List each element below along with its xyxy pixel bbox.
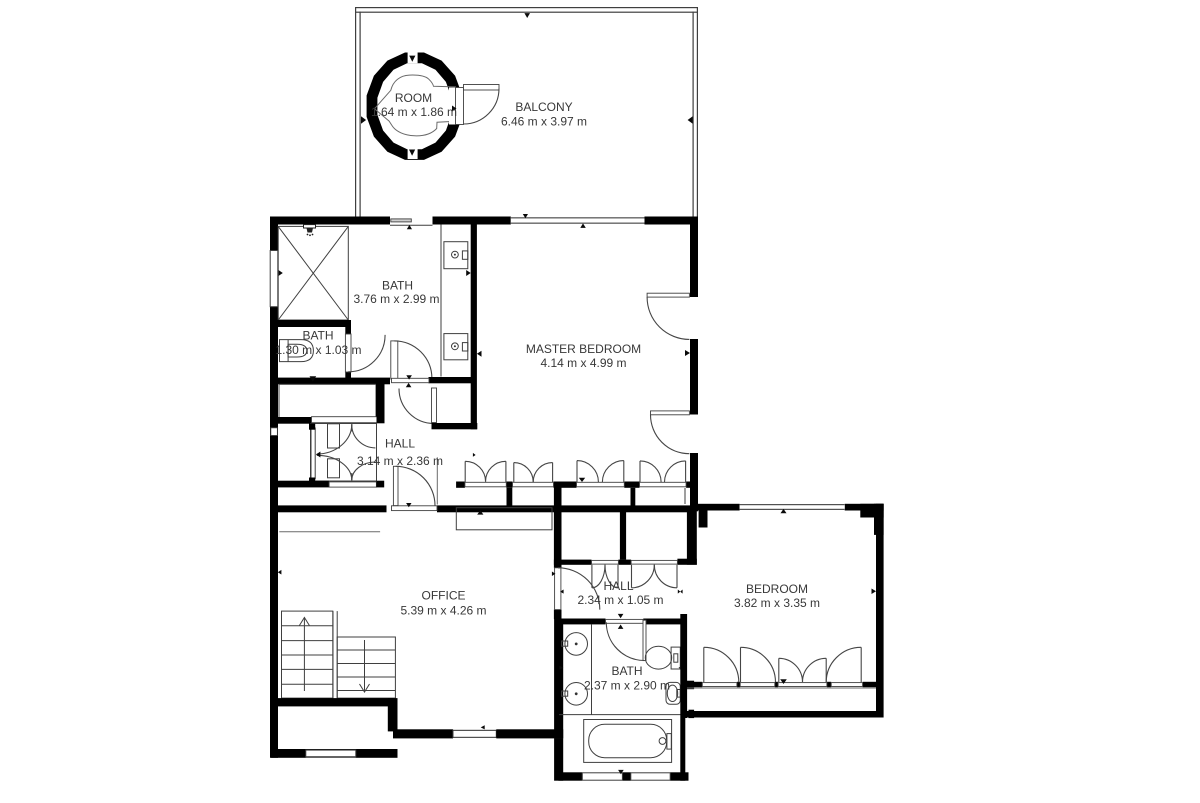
- svg-text:5.39 m x 4.26 m: 5.39 m x 4.26 m: [400, 604, 486, 618]
- svg-text:BATH: BATH: [382, 279, 413, 293]
- svg-text:2.34 m x 1.05 m: 2.34 m x 1.05 m: [577, 593, 663, 607]
- svg-text:2.37 m x 2.90 m: 2.37 m x 2.90 m: [584, 679, 670, 693]
- svg-text:3.76 m x 2.99 m: 3.76 m x 2.99 m: [353, 292, 439, 306]
- svg-text:HALL: HALL: [385, 437, 415, 451]
- svg-text:MASTER BEDROOM: MASTER BEDROOM: [526, 342, 641, 356]
- svg-text:ROOM: ROOM: [395, 91, 432, 105]
- svg-text:OFFICE: OFFICE: [422, 589, 466, 603]
- svg-text:4.14 m x 4.99 m: 4.14 m x 4.99 m: [540, 356, 626, 370]
- svg-text:BATH: BATH: [302, 329, 333, 343]
- svg-text:BATH: BATH: [611, 664, 642, 678]
- svg-text:BALCONY: BALCONY: [515, 100, 572, 114]
- svg-text:6.46 m x 3.97 m: 6.46 m x 3.97 m: [501, 115, 587, 129]
- svg-text:BEDROOM: BEDROOM: [746, 582, 808, 596]
- svg-text:3.14 m x 2.36 m: 3.14 m x 2.36 m: [357, 454, 443, 468]
- svg-text:1.30 m x 1.03 m: 1.30 m x 1.03 m: [275, 343, 361, 357]
- svg-text:3.82 m x 3.35 m: 3.82 m x 3.35 m: [734, 596, 820, 610]
- svg-text:1.64 m x 1.86 m: 1.64 m x 1.86 m: [371, 105, 457, 119]
- svg-text:HALL: HALL: [603, 579, 633, 593]
